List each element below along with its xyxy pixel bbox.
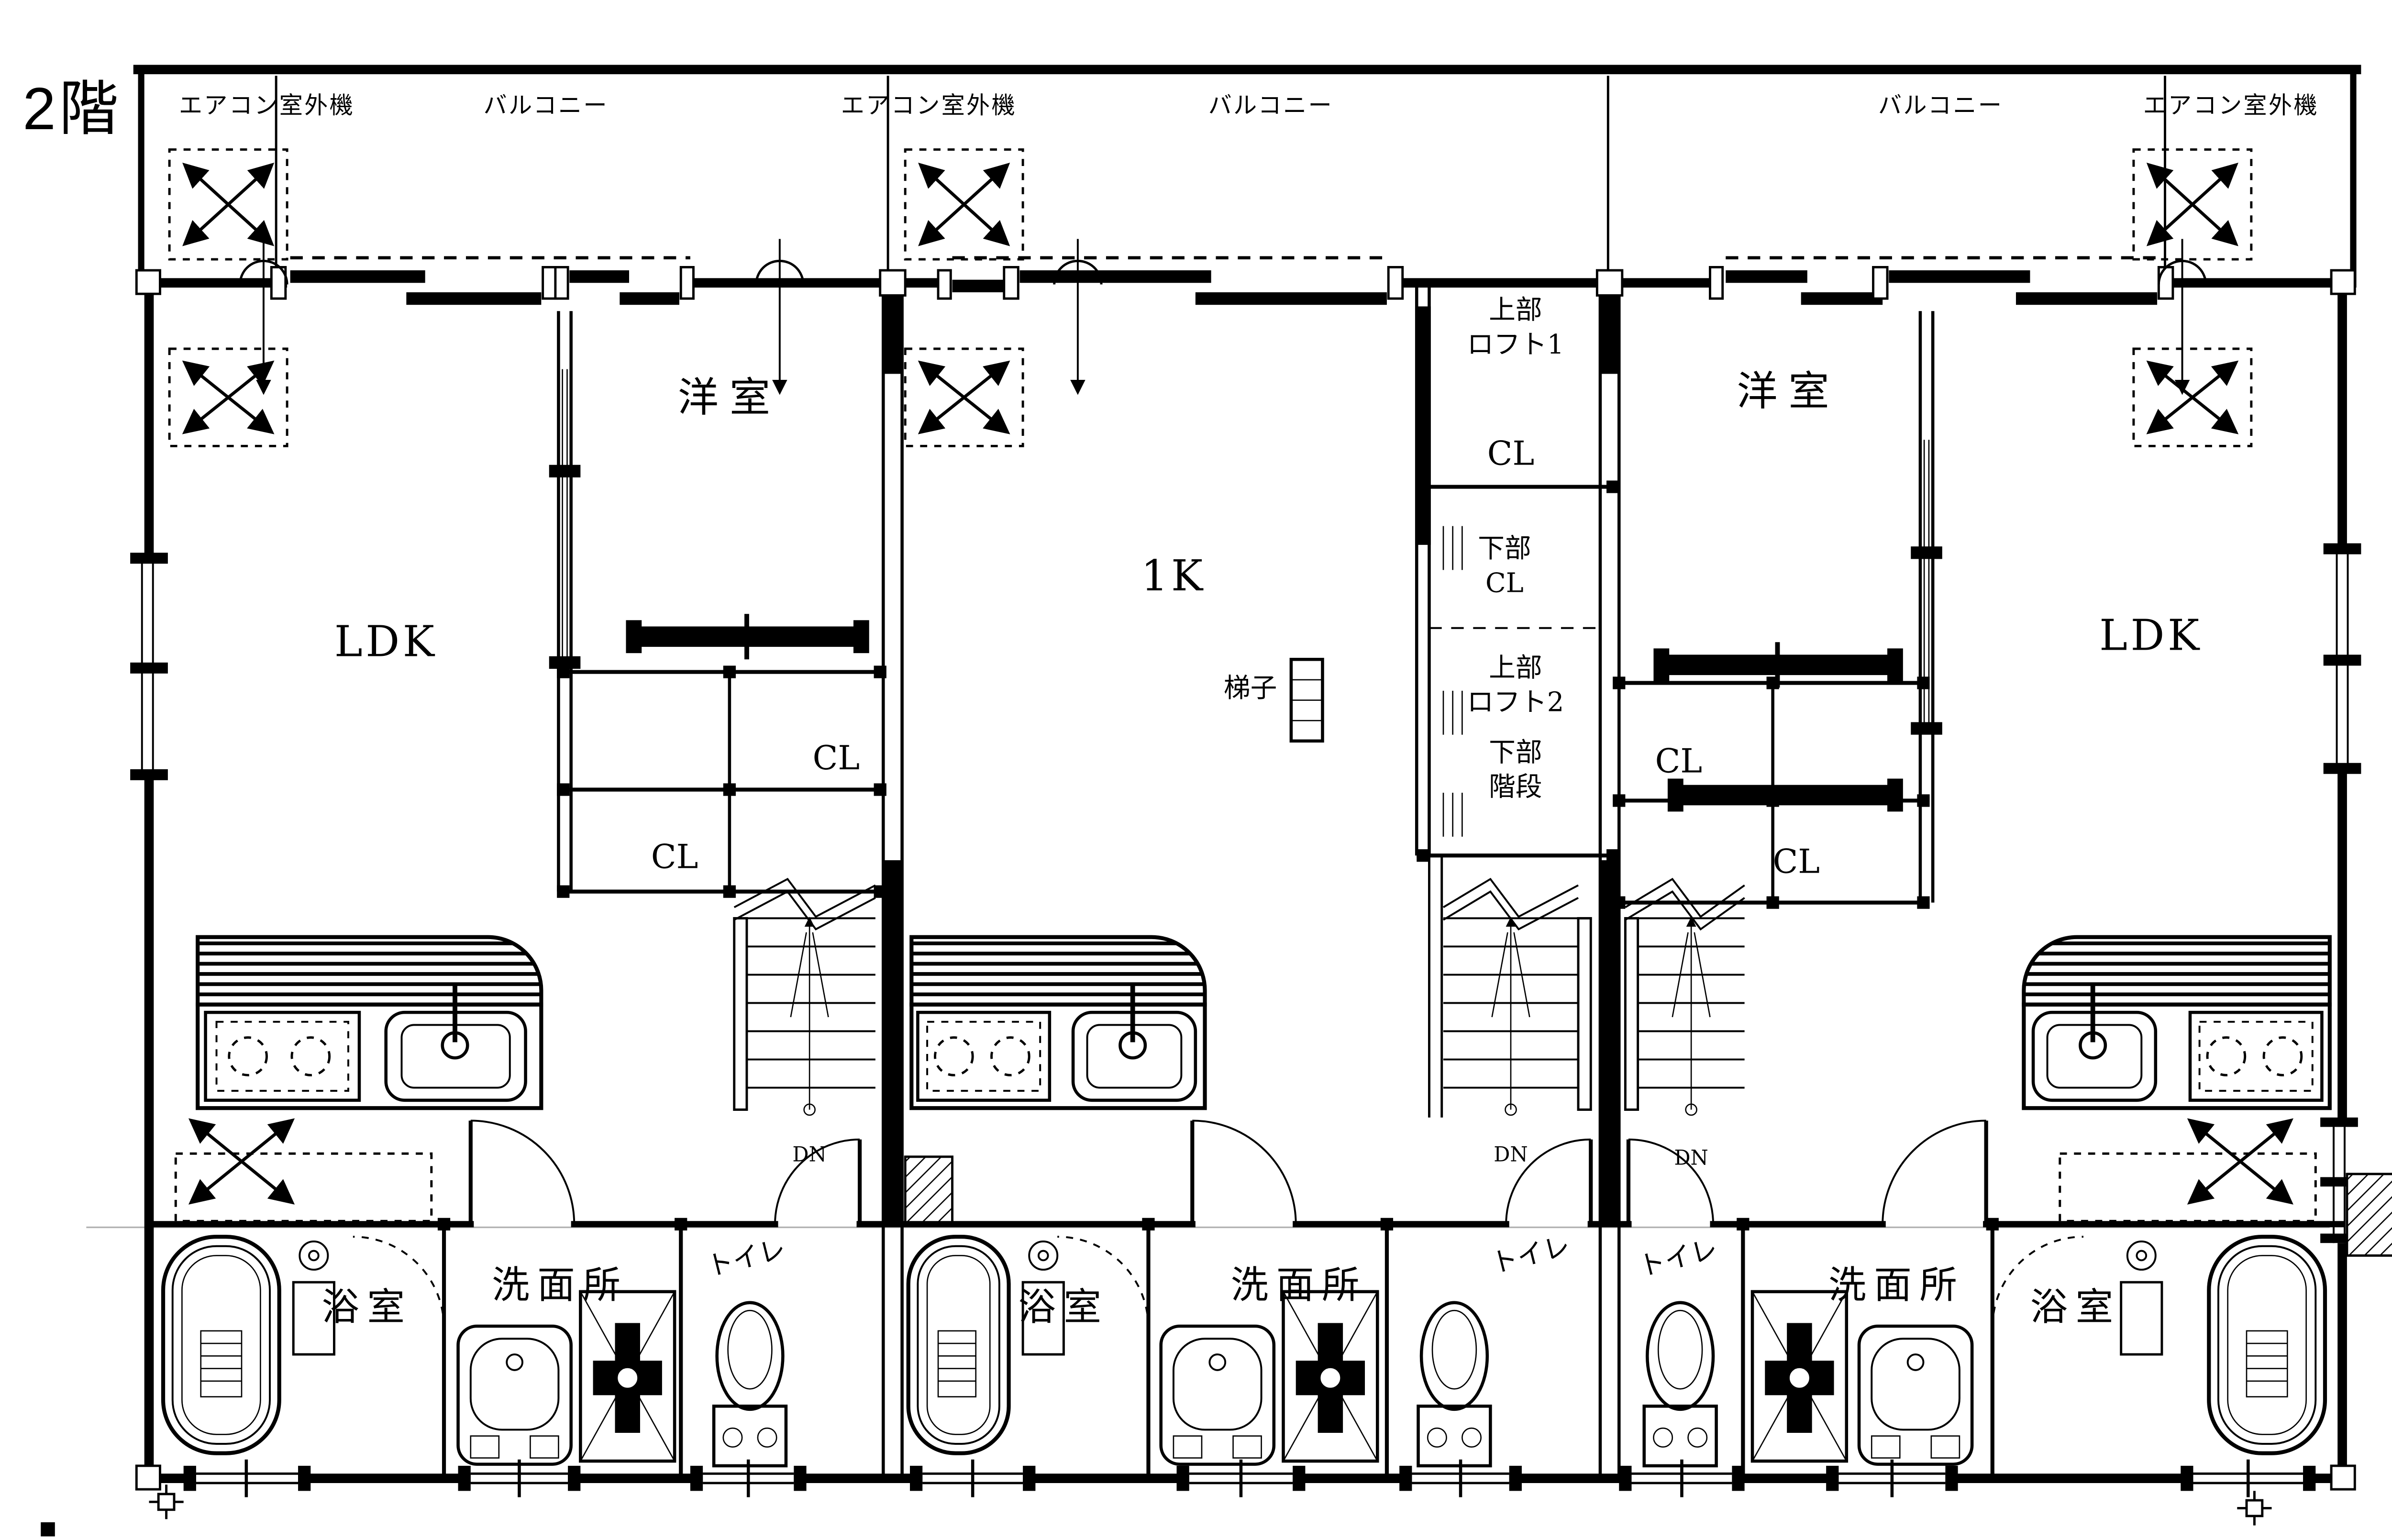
- kitchen-counter: [911, 937, 1205, 1005]
- window-icon: [1619, 1460, 1744, 1497]
- ac-unit-icon: [2134, 349, 2251, 446]
- washroom-label: 洗面所: [1828, 1263, 1965, 1307]
- bathroom-right: 浴室: [1993, 1237, 2325, 1453]
- vent-symbols: [240, 239, 2206, 392]
- kitchen-counter: [2024, 937, 2329, 1005]
- under-cl-label-line1: 下部: [1478, 533, 1531, 564]
- stove-icon: [206, 1012, 359, 1100]
- label-ac-right: エアコン室外機: [2143, 91, 2319, 119]
- bathtub-icon: [163, 1237, 279, 1453]
- label-balcony-left: バルコニー: [484, 91, 609, 119]
- label-ac-left: エアコン室外機: [179, 91, 354, 119]
- kitchen-center: [911, 937, 1205, 1108]
- door-icon: [1883, 1120, 1986, 1224]
- window-icon: [2324, 543, 2361, 774]
- stove-icon: [918, 1012, 1049, 1100]
- washroom-right: 洗面所: [1752, 1263, 1972, 1464]
- stairs-left: DN: [734, 879, 875, 1166]
- unit-right: 洋室 LDK CL CL: [1619, 311, 2392, 1255]
- sliding-door-icon: [271, 264, 557, 308]
- washroom-center: 洗面所: [1161, 1263, 1378, 1464]
- washroom-left: 洗面所: [458, 1263, 675, 1464]
- toilet-icon: [1644, 1303, 1716, 1466]
- under-cl-label-line2: CL: [1485, 567, 1524, 598]
- ac-projection-left: [176, 1120, 432, 1221]
- benchmark-icon: [41, 1522, 55, 1537]
- balcony-sliding-doors: [271, 264, 2173, 308]
- floor-title: 2階: [22, 76, 122, 142]
- vanity-sink-icon: [1859, 1326, 1972, 1464]
- floor-plan-2f: エアコン室外機 バルコニー エアコン室外機 バルコニー バルコニー エアコン室外…: [0, 0, 2392, 1540]
- label-balcony-center: バルコニー: [1208, 91, 1333, 119]
- stairs-dn-label: DN: [1494, 1143, 1528, 1167]
- ac-unit-icon: [169, 150, 287, 260]
- toilet-label: トイレ: [704, 1233, 789, 1283]
- washing-machine-icon: [1283, 1292, 1377, 1461]
- ladder-label: 梯子: [1224, 673, 1277, 704]
- stove-icon: [2190, 1012, 2322, 1100]
- label-ac-center: エアコン室外機: [841, 91, 1017, 119]
- benchmark-marks: [41, 1485, 2271, 1536]
- loft-column: 上部 ロフト1 CL 下部 CL 上部 ロフト2 下部 階段: [1415, 283, 1619, 855]
- room-label-1k: 1K: [1141, 551, 1206, 600]
- doors-right: [1628, 1120, 1986, 1224]
- band-partitions: [444, 1224, 1993, 1478]
- toilet-label: トイレ: [1636, 1233, 1721, 1283]
- sliding-door-icon: [555, 264, 694, 308]
- window-icon: [910, 1460, 1035, 1497]
- loft2-label-line1: 上部: [1489, 652, 1542, 683]
- doors-left: [471, 1120, 860, 1224]
- closet-label: CL: [651, 838, 698, 876]
- under-stair-label-line2: 階段: [1489, 772, 1542, 803]
- vent-icon: [756, 239, 803, 392]
- bathroom-center: 浴室: [908, 1237, 1149, 1453]
- kitchen-left: [198, 937, 541, 1108]
- unit-center: 1K 上部 ロフト1 CL 下部 CL 上部 ロフト2 下部 階段: [905, 283, 1619, 1224]
- toilet-icon: [714, 1303, 786, 1466]
- bath-label: 浴室: [321, 1285, 412, 1329]
- benchmark-icon: [2237, 1491, 2271, 1525]
- toilet-center: トイレ: [1418, 1230, 1573, 1466]
- vent-icon: [1054, 239, 1101, 392]
- closet-label: CL: [1487, 435, 1534, 473]
- unit-left: 洋室 LDK CL CL: [176, 311, 883, 1224]
- room-label-bedroom-right: 洋室: [1737, 368, 1840, 415]
- shower-mixer-icon: [2121, 1241, 2162, 1354]
- ac-unit-icon: [2134, 150, 2251, 260]
- stairs-right: DN: [1625, 879, 1744, 1170]
- ac-unit-icon: [169, 349, 287, 446]
- bottom-band: 浴室 洗面所 トイレ: [149, 1224, 2343, 1497]
- toilet-right: トイレ: [1636, 1233, 1721, 1466]
- pipe-shaft-hatched: [2347, 1174, 2392, 1256]
- window-icon: [184, 1460, 311, 1497]
- room-label-ldk-left: LDK: [334, 617, 438, 666]
- window-icon: [130, 553, 168, 780]
- closets-left: CL CL: [558, 614, 883, 891]
- window-icon: [690, 1460, 807, 1497]
- toilet-icon: [1418, 1303, 1491, 1466]
- bathroom-left: 浴室: [163, 1237, 444, 1453]
- washroom-label: 洗面所: [492, 1263, 628, 1307]
- loft-hatch-ticks: [1443, 526, 1462, 837]
- door-icon: [471, 1120, 574, 1224]
- loft1-label-line1: 上部: [1489, 295, 1542, 326]
- label-balcony-right: バルコニー: [1878, 91, 2003, 119]
- ac-projection-right: [2060, 1120, 2316, 1221]
- bathtub-icon: [2209, 1237, 2325, 1453]
- ladder: 梯子: [1224, 659, 1323, 741]
- stairs-center: DN: [1429, 855, 1591, 1166]
- loft1-label-line2: ロフト1: [1467, 329, 1564, 360]
- sliding-door-icon: [1004, 264, 1403, 308]
- room-label-ldk-right: LDK: [2099, 611, 2203, 660]
- exterior-windows: [130, 543, 2361, 1243]
- window-icon: [2181, 1460, 2315, 1497]
- door-icon: [1192, 1120, 1296, 1224]
- closet-pole: [626, 614, 869, 659]
- vent-icon: [240, 239, 287, 392]
- washroom-label: 洗面所: [1231, 1263, 1367, 1307]
- ac-unit-icon: [905, 349, 1023, 446]
- bathtub-icon: [908, 1237, 1009, 1453]
- loft2-label-line2: ロフト2: [1467, 687, 1564, 718]
- ac-unit-icon: [905, 150, 1023, 260]
- closet-label: CL: [813, 739, 860, 777]
- doors-center: [1192, 1120, 1591, 1224]
- bath-label: 浴室: [2030, 1285, 2121, 1329]
- room-label-bedroom-left: 洋室: [678, 374, 781, 421]
- bath-label: 浴室: [1018, 1285, 1109, 1329]
- vanity-sink-icon: [1161, 1326, 1274, 1464]
- divider-wall-right: [1911, 311, 1942, 902]
- kitchen-right: [2024, 937, 2329, 1108]
- toilet-left: トイレ: [704, 1233, 789, 1466]
- washing-machine-icon: [1752, 1292, 1847, 1461]
- sliding-door-icon: [1873, 264, 2173, 308]
- closet-label: CL: [1655, 742, 1702, 780]
- kitchen-counter: [198, 937, 541, 1005]
- pipe-shaft-hatched: [905, 1157, 952, 1224]
- washing-machine-icon: [580, 1292, 675, 1461]
- divider-wall-left: [549, 311, 581, 891]
- closet-label: CL: [1773, 842, 1820, 881]
- stairs-dn-label: DN: [792, 1143, 826, 1167]
- toilet-label: トイレ: [1488, 1230, 1573, 1280]
- under-stair-label-line1: 下部: [1489, 737, 1542, 768]
- vanity-sink-icon: [458, 1326, 571, 1464]
- closet-pole: [1668, 779, 1903, 812]
- balcony-band: エアコン室外機 バルコニー エアコン室外機 バルコニー バルコニー エアコン室外…: [138, 69, 2357, 284]
